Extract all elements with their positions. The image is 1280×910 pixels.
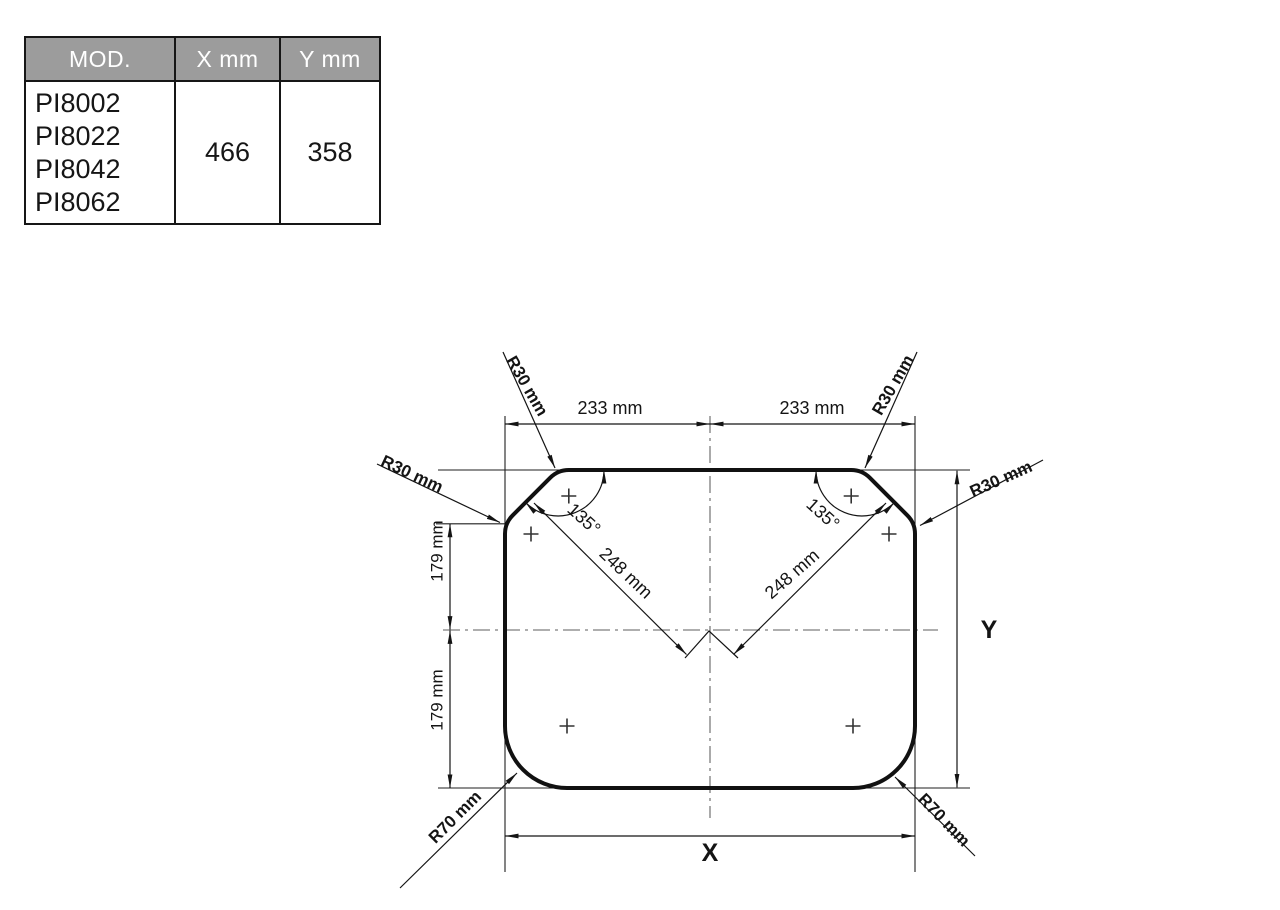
technical-drawing: 233 mm 233 mm R30 mm R30 mm R30 mm R30 m… (0, 0, 1280, 910)
r30-left-label: R30 mm (378, 451, 446, 496)
radius-center-mark (844, 489, 859, 504)
dim-179-lower-label: 179 mm (428, 669, 447, 730)
radius-center-mark (882, 527, 897, 542)
dim-line-248-right (734, 503, 887, 655)
y-axis-label: Y (981, 616, 998, 644)
dim-179-upper-label: 179 mm (428, 520, 447, 581)
dim-233-left-label: 233 mm (577, 398, 642, 418)
radius-center-mark (524, 527, 539, 542)
dim-line-248-left (534, 503, 687, 655)
r30-right-label: R30 mm (967, 457, 1035, 501)
leader-r70-left (400, 773, 517, 888)
datasheet-page: MOD. X mm Y mm PI8002 PI8022 PI8042 PI80… (0, 0, 1280, 910)
angle-left-label: 135° (563, 499, 604, 539)
center-v-mark (685, 631, 738, 658)
r30-top-left-label: R30 mm (502, 353, 552, 420)
radius-center-mark (846, 719, 861, 734)
r30-top-right-label: R30 mm (868, 352, 918, 419)
x-axis-label: X (702, 839, 719, 867)
centerlines (443, 416, 938, 818)
extension-lines (436, 416, 970, 872)
angle-right-label: 135° (802, 494, 843, 534)
radius-center-mark (560, 719, 575, 734)
dim-233-right-label: 233 mm (779, 398, 844, 418)
r70-right-label: R70 mm (914, 790, 974, 851)
r70-left-label: R70 mm (425, 787, 485, 847)
